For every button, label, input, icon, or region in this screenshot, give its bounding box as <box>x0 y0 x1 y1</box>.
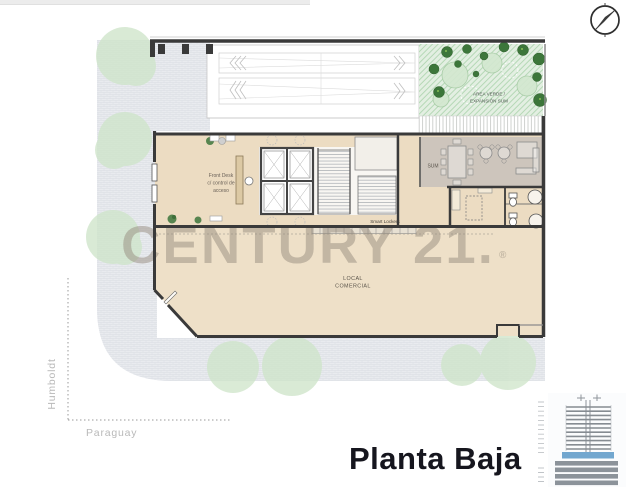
floorplan-canvas: CENTURY 21. ® Front Desk c/ control de a… <box>0 0 638 490</box>
stairs-secondary <box>358 176 396 214</box>
street-label-paraguay: Paraguay <box>86 427 137 439</box>
entrance-door-leaf <box>152 185 157 202</box>
green-area <box>419 42 547 116</box>
area-verde-label: AREA VERDE / <box>473 92 506 97</box>
bath-sink-table <box>528 190 542 204</box>
entrance-door-leaf <box>152 164 157 181</box>
front-desk-counter <box>236 156 243 204</box>
svg-text:®: ® <box>499 250 507 261</box>
garage-ramps <box>207 45 419 118</box>
floor-level-ticks <box>538 402 544 482</box>
floorplan-drawing: CENTURY 21. ® Front Desk c/ control de a… <box>0 0 638 490</box>
front-desk-label: c/ control de <box>207 181 234 187</box>
page-title: Planta Baja <box>349 443 522 474</box>
smart-lockers-label: Smart Lockers <box>370 219 400 224</box>
highlighted-ground-floor <box>562 452 614 459</box>
front-desk-label: acceso <box>213 188 229 194</box>
area-verde-label: EXPANSIÓN SUM <box>470 98 508 104</box>
building-elevation-icon <box>538 393 626 487</box>
front-desk-label: Front Desk <box>209 173 234 179</box>
core-room <box>355 137 397 170</box>
local-comercial-label: LOCAL <box>343 276 363 282</box>
street-label-humboldt: Humboldt <box>46 358 58 409</box>
local-comercial-label: COMERCIAL <box>335 284 371 290</box>
svg-text:CENTURY 21.: CENTURY 21. <box>121 216 495 275</box>
top-gray-strip <box>0 0 310 5</box>
sum-label: SUM <box>427 164 438 170</box>
compass-icon <box>591 3 619 37</box>
stairs-main <box>318 150 350 214</box>
